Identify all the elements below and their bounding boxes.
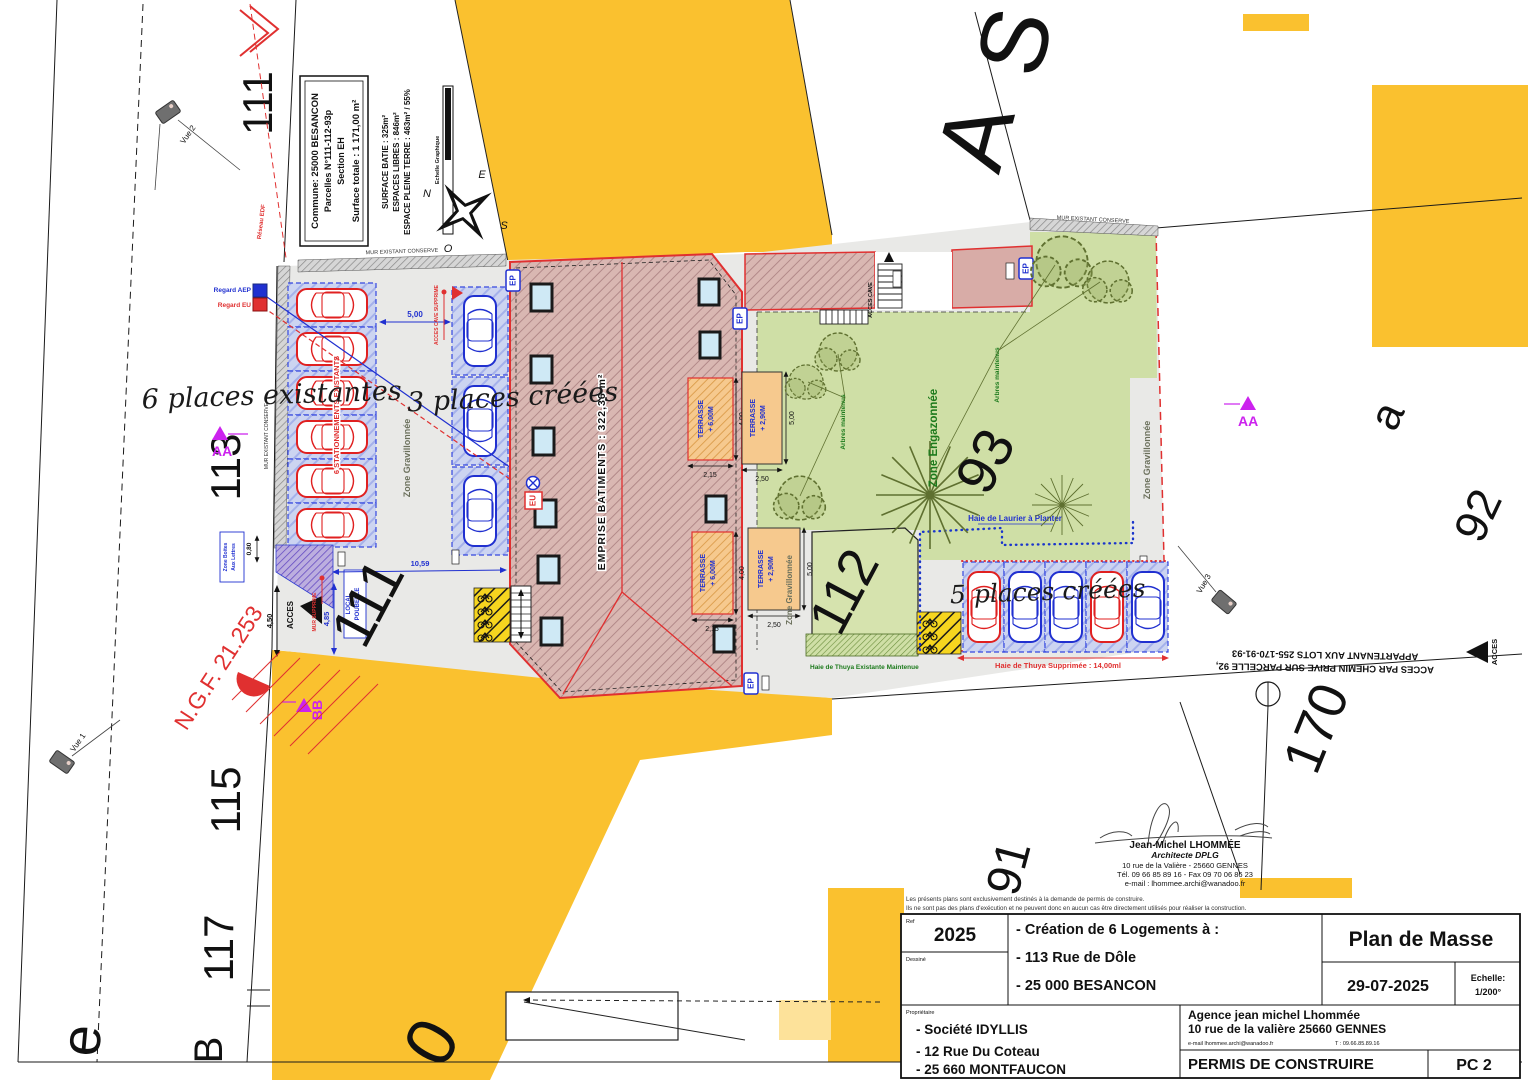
dim-5m: 5,00	[407, 310, 423, 319]
chemin-line2: APPARTENANT AUX LOTS 255-170-91-93	[1232, 647, 1419, 661]
surface-totale-label: Surface totale : 1 171,00 m²	[351, 100, 362, 223]
ref-value: 2025	[934, 925, 977, 946]
permit-title: PERMIS DE CONSTRUIRE	[1188, 1056, 1374, 1073]
letter-B: B	[187, 1037, 231, 1064]
acces-cave-label: ACCES CAVE	[868, 282, 874, 318]
parcel-170: 170	[1272, 675, 1361, 781]
chevron-arrows-icon	[240, 6, 278, 56]
owner-line3: - 25 660 MONTFAUCON	[916, 1062, 1066, 1077]
ep-marker: EP	[733, 308, 747, 329]
letter-S: S	[956, 0, 1075, 86]
ep-marker: EP	[506, 270, 520, 291]
owner-line1: - Société IDYLLIS	[916, 1022, 1028, 1037]
disclaimer-1: Les présents plans sont exclusivement de…	[906, 896, 1145, 903]
site-plan-drawing: MUR EXISTANT CONSERVE MUR EXISTANT CONSE…	[0, 0, 1528, 1080]
regard-aep-label: Regard AEP	[214, 287, 252, 294]
project-line2: - 113 Rue de Dôle	[1016, 950, 1136, 966]
parcel-91: 91	[977, 835, 1042, 900]
title-block: Les présents plans sont exclusivement de…	[901, 896, 1520, 1078]
proprietaire-label: Propriétaire	[906, 1010, 934, 1016]
scale-bar-label: Echelle Graphique	[435, 136, 441, 184]
vue3-label: Vue 3	[1195, 572, 1213, 595]
acces-east-label: ACCES	[1490, 639, 1499, 665]
camera-icon	[1211, 590, 1237, 615]
terrace-height: + 2,90M	[768, 556, 775, 582]
thuya-removed-label: Haie de Thuya Supprimée : 14,00ml	[995, 661, 1121, 670]
plan-title: Plan de Masse	[1349, 928, 1494, 951]
agency-email: e-mail lhommee.archi@wanadoo.fr	[1188, 1041, 1274, 1047]
dim-080: 0,80	[246, 542, 253, 555]
terrace-height: + 2,90M	[760, 405, 767, 431]
stamp-email: e-mail : lhommee.archi@wanadoo.fr	[1125, 879, 1246, 888]
terrace-label: TERRASSE	[750, 399, 757, 437]
dim: 2,15	[705, 626, 719, 633]
parcel-92: 92	[1443, 481, 1512, 549]
dim: 2,50	[755, 476, 769, 483]
agency-tel: T : 09.66.85.89.16	[1335, 1041, 1380, 1047]
project-line1: - Création de 6 Logements à :	[1016, 922, 1219, 938]
section-aa-east: AA	[1238, 413, 1258, 429]
compass-o: O	[444, 243, 453, 255]
parcel-111-road: 111	[234, 71, 281, 135]
compass-e: E	[478, 169, 486, 181]
wall-label-nw: MUR EXISTANT CONSERVE	[366, 248, 439, 257]
vue2-label: Vue 2	[178, 123, 198, 145]
dim-1059: 10,59	[411, 559, 430, 568]
espace-pleine-terre: ESPACE PLEINE TERRE : 463m² / 55%	[403, 89, 412, 235]
owner-line2: - 12 Rue Du Coteau	[916, 1044, 1040, 1059]
dim: 2,15	[703, 472, 717, 479]
agency-line2: 10 rue de la valière 25660 GENNES	[1188, 1022, 1386, 1036]
reseau-edf-label: Réseau EDF	[257, 204, 267, 240]
parcel-115: 115	[202, 767, 249, 834]
ref-label: Ref	[906, 919, 915, 925]
parcel-117: 117	[195, 915, 242, 982]
acces-west-label: ACCES	[286, 600, 295, 629]
terrace-label: TERRASSE	[758, 550, 765, 588]
echelle-value: 1/200°	[1475, 987, 1502, 997]
regard-eu-label: Regard EU	[218, 302, 252, 309]
d im: 5,00	[807, 562, 814, 576]
terrace-label: TERRASSE	[698, 400, 705, 438]
compass-s: S	[500, 220, 508, 232]
stamp-telfax: Tél. 09 66 85 89 16 - Fax 09 70 06 86 23	[1117, 870, 1253, 879]
info-box: Commune: 25000 BESANCON Parcelles N°111-…	[300, 76, 412, 246]
camera-icon	[155, 100, 181, 124]
sheet-number: PC 2	[1456, 1057, 1492, 1074]
terrace-height: + 6,00M	[710, 560, 717, 586]
terrace-height: + 6,00M	[708, 406, 715, 432]
stamp-title: Architecte DPLG	[1150, 850, 1219, 860]
ep-marker: EP	[744, 673, 758, 694]
disclaimer-2: Ils ne sont pas des plans d'exécution et…	[906, 905, 1247, 912]
wall-label-w: MUR EXISTANT CONSERVE	[264, 402, 270, 469]
zone-boites-l1: Zone Boites	[223, 542, 229, 571]
dim: 2,50	[767, 622, 781, 629]
thuya-kept-label: Haie de Thuya Existante Maintenue	[810, 664, 919, 671]
stamp-address: 10 rue de la Valière - 25660 GENNES	[1122, 861, 1248, 870]
svg-text:EP: EP	[747, 678, 756, 689]
svg-text:EP: EP	[736, 313, 745, 324]
echelle-label: Echelle:	[1471, 973, 1506, 983]
camera-icon	[49, 750, 75, 774]
laurier-label: Haie de Laurier à Planter	[968, 514, 1062, 523]
vue1-label: Vue 1	[68, 731, 88, 753]
scale-bar: Echelle Graphique	[435, 86, 453, 234]
svg-text:EU: EU	[529, 495, 538, 506]
terrace-label: TERRASSE	[700, 554, 707, 592]
dim: 4,00	[739, 566, 746, 580]
zone-engazonnee: Zone Engazonnée	[928, 389, 940, 487]
zone-gravillonnee: Zone Gravillonnée	[1142, 421, 1152, 500]
acces-cave-supprime-label: ACCES CAVE SUPPRIME	[434, 284, 440, 345]
svg-text:EP: EP	[1022, 263, 1031, 274]
acces-east: ACCES	[1466, 639, 1499, 665]
regard-eu-symbol	[253, 298, 267, 311]
mur-supprime-label: MUR SUPPRIME	[312, 592, 318, 632]
parking-west-existing: 6 STATIONNEMENTS EXISTANTS	[288, 283, 376, 547]
architect-stamp: Jean-Michel LHOMMÉE Architecte DPLG 10 r…	[1095, 804, 1272, 888]
arbres-label: Arbres maintenus	[994, 347, 1001, 403]
espaces-libres: ESPACES LIBRES : 846m²	[392, 112, 401, 212]
agency-line1: Agence jean michel Lhommée	[1188, 1008, 1360, 1022]
section-aa-west: AA	[212, 443, 232, 459]
zone-boites-l2: Aux Lettres	[231, 543, 237, 571]
chemin-prive-text: ACCES PAR CHEMIN PRIVE SUR PARCELLE 92, …	[1216, 647, 1435, 675]
section-bb: BB	[309, 700, 325, 720]
zone-gravillonnee: Zone Gravillonnée	[785, 555, 794, 625]
thuya-hedge-kept	[806, 634, 918, 656]
dessine-label: Dessiné	[906, 957, 926, 963]
compass-n: N	[423, 188, 431, 200]
letter-A: A	[917, 92, 1036, 181]
dim: 5,00	[789, 411, 796, 425]
arbres-label: Arbres maintenus	[840, 394, 847, 450]
svg-text:EP: EP	[509, 275, 518, 286]
ngf-label: N.G.F. 21.253	[169, 601, 268, 734]
letter-e: e	[48, 1022, 113, 1059]
commune-label: Commune: 25000 BESANCON	[310, 93, 321, 229]
eu-marker: EU	[525, 477, 542, 510]
project-line3: - 25 000 BESANCON	[1016, 978, 1156, 994]
parcelles-label: Parcelles N°111-112-93p	[323, 109, 333, 212]
plan-date: 29-07-2025	[1347, 978, 1429, 995]
site-plan-sheet: MUR EXISTANT CONSERVE MUR EXISTANT CONSE…	[0, 0, 1528, 1080]
west-stairs-bikes	[474, 586, 531, 642]
stationnements-label: 6 STATIONNEMENTS EXISTANTS	[332, 356, 341, 474]
zone-gravillonnee: Zone Gravillonnée	[402, 419, 412, 498]
letter-a: a	[1359, 394, 1414, 437]
regard-aep-symbol	[253, 284, 267, 297]
surface-batie: SURFACE BATIE : 325m²	[381, 115, 390, 209]
section-label: Section EH	[336, 137, 346, 185]
